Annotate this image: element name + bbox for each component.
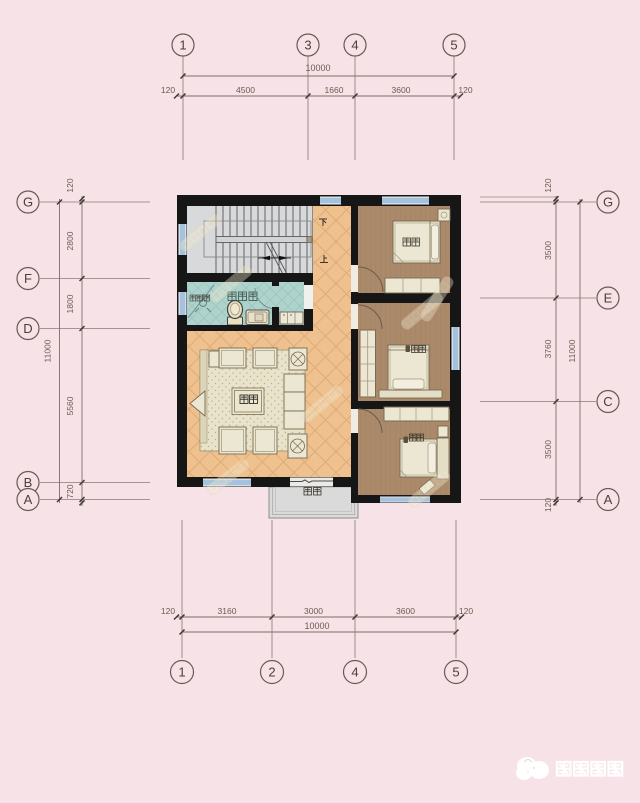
- svg-text:F: F: [24, 271, 32, 286]
- svg-text:1: 1: [179, 38, 186, 53]
- svg-text:A: A: [24, 492, 33, 507]
- svg-text:120: 120: [543, 178, 553, 192]
- svg-text:1: 1: [178, 665, 185, 680]
- svg-text:4: 4: [351, 665, 358, 680]
- svg-text:3600: 3600: [396, 606, 415, 616]
- svg-text:G: G: [603, 195, 613, 210]
- svg-text:120: 120: [543, 498, 553, 512]
- svg-text:E: E: [604, 291, 613, 306]
- svg-text:C: C: [603, 394, 612, 409]
- svg-text:3600: 3600: [392, 85, 411, 95]
- svg-text:3160: 3160: [218, 606, 237, 616]
- svg-text:5: 5: [452, 665, 459, 680]
- svg-text:10000: 10000: [304, 621, 329, 631]
- svg-text:3: 3: [304, 38, 311, 53]
- svg-text:5560: 5560: [65, 396, 75, 415]
- svg-text:3500: 3500: [543, 440, 553, 459]
- svg-text:11000: 11000: [567, 339, 577, 362]
- svg-text:10000: 10000: [305, 63, 330, 73]
- svg-text:1660: 1660: [325, 85, 344, 95]
- svg-text:A: A: [604, 492, 613, 507]
- svg-text:3760: 3760: [543, 339, 553, 358]
- svg-text:3000: 3000: [304, 606, 323, 616]
- svg-text:120: 120: [459, 606, 473, 616]
- svg-text:120: 120: [161, 606, 175, 616]
- svg-text:2800: 2800: [65, 231, 75, 250]
- svg-text:11000: 11000: [43, 339, 53, 362]
- svg-text:1800: 1800: [65, 294, 75, 313]
- svg-text:3500: 3500: [543, 241, 553, 260]
- svg-text:5: 5: [450, 38, 457, 53]
- svg-text:120: 120: [161, 85, 175, 95]
- svg-text:B: B: [24, 475, 33, 490]
- svg-text:720: 720: [65, 484, 75, 498]
- svg-text:4500: 4500: [236, 85, 255, 95]
- svg-text:120: 120: [458, 85, 472, 95]
- svg-text:120: 120: [65, 178, 75, 192]
- svg-text:G: G: [23, 195, 33, 210]
- svg-text:2: 2: [268, 665, 275, 680]
- svg-text:D: D: [23, 321, 32, 336]
- svg-text:4: 4: [351, 38, 358, 53]
